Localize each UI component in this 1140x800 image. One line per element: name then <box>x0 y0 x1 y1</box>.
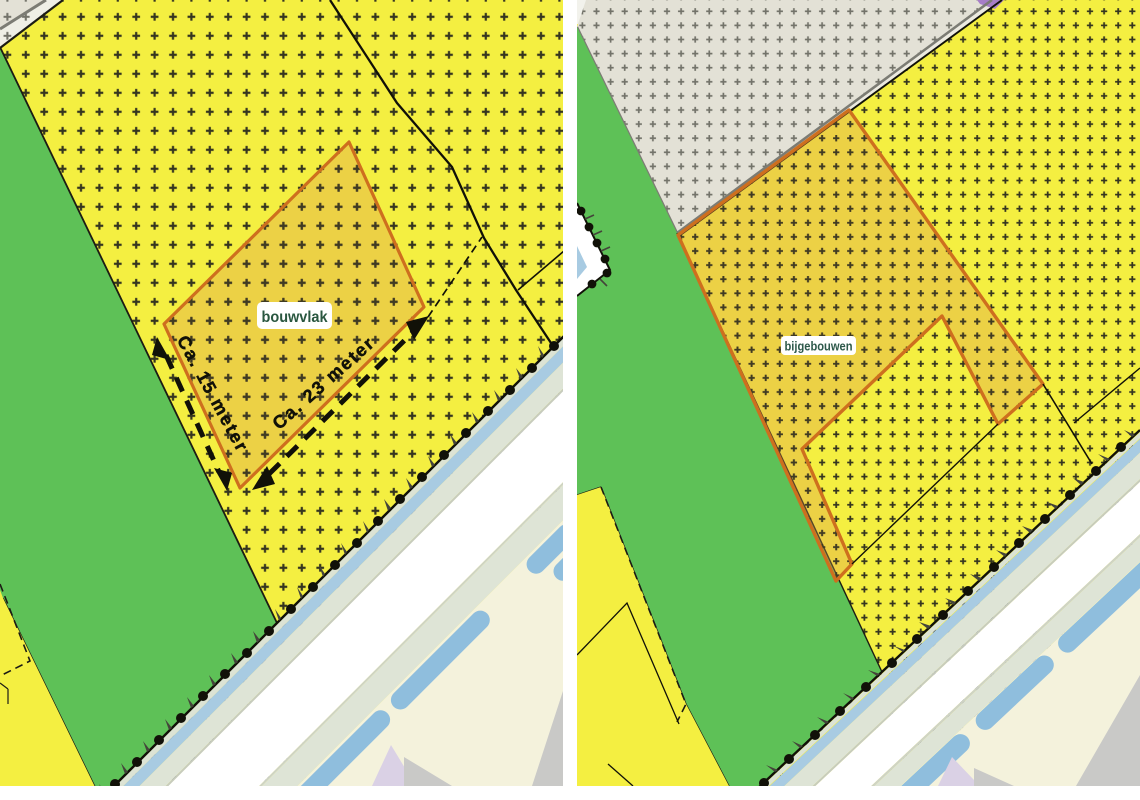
svg-text:bouwvlak: bouwvlak <box>262 309 328 326</box>
svg-text:bijgebouwen: bijgebouwen <box>785 339 853 354</box>
